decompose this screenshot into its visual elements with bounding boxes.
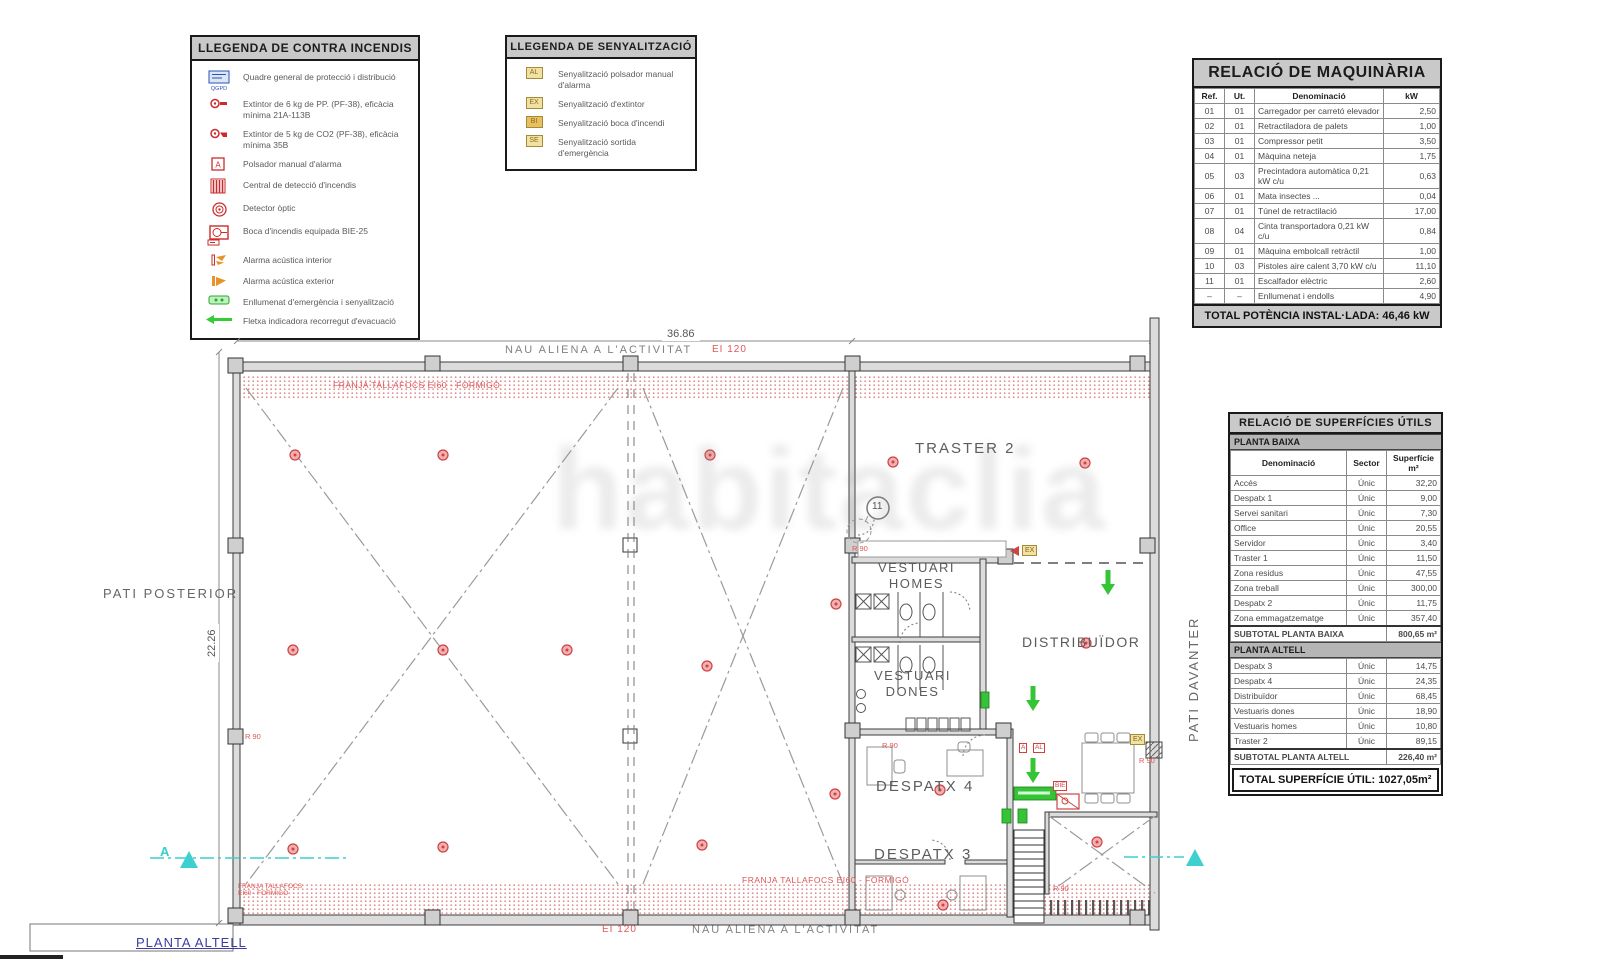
sanitary-fixtures — [856, 592, 970, 731]
evacuation-arrows — [1026, 570, 1115, 783]
floor-plan-drawing — [0, 0, 1600, 973]
floor-plan-sheet: habitaclia 36.8622.26NAU ALIENA A L'ACTI… — [0, 0, 1600, 973]
annex-outline — [0, 924, 233, 957]
emergency-lights — [981, 692, 1056, 823]
staircase — [1014, 830, 1044, 923]
traster-counter — [858, 541, 1006, 557]
door-swings — [858, 519, 985, 860]
